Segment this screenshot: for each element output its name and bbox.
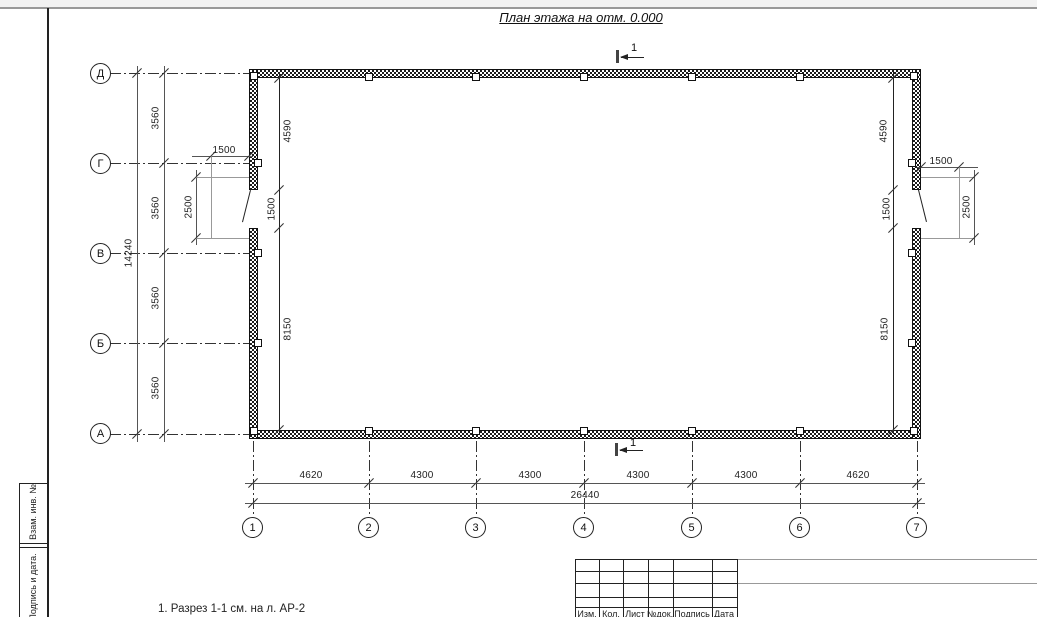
frame-top-line [0,7,1037,9]
dim-label: 3560 [151,376,162,399]
door-left-swing-edge [211,156,212,238]
dim-label: 4300 [626,470,649,481]
column-marker [254,249,262,257]
dim-label-total: 26440 [571,490,600,501]
dim-label: 1500 [267,197,278,220]
titleblock-line [575,559,576,617]
column-marker [254,159,262,167]
dim-line-bottom-total [245,503,925,504]
dim-label: 4590 [879,119,890,142]
column-marker [250,427,258,435]
column-marker [580,73,588,81]
axis-line-row [110,163,249,164]
door-left-width-dim-line [192,156,253,157]
axis-label: В [97,248,104,260]
column-marker [250,72,258,80]
axis-line-col [800,441,801,517]
door-right-leaf [918,190,927,222]
dim-label: 3560 [151,286,162,309]
stamp-cell-label: Взам. инв. № [28,484,38,540]
titleblock-header: №док. [647,609,673,617]
column-marker [796,427,804,435]
column-marker [254,339,262,347]
titleblock-line [712,559,713,617]
column-marker [688,73,696,81]
axis-bubble-col: 5 [681,517,702,538]
door-left-swing-dim-line [196,170,197,245]
axis-bubble-row: Д [90,63,111,84]
dim-line-interior-left [279,72,280,434]
dim-label: 2500 [184,195,195,218]
door-left-swing-bottom [196,238,249,239]
axis-line-row [110,343,249,344]
axis-bubble-col: 3 [465,517,486,538]
section-arrow-icon-bottom [619,447,627,453]
dim-label: 1500 [212,145,235,156]
axis-label: Г [98,158,104,170]
door-right-swing-dim-line [974,170,975,245]
dim-label: 3560 [151,196,162,219]
dim-label: 1500 [882,197,893,220]
column-marker [688,427,696,435]
door-right-swing-bottom [921,238,974,239]
axis-bubble-row: В [90,243,111,264]
titleblock-line [737,559,738,617]
titleblock-header: Дата [714,609,734,617]
axis-bubble-col: 4 [573,517,594,538]
axis-label: 6 [796,522,802,534]
door-right-width-dim-line [917,167,978,168]
dim-line-bottom-segments [245,483,925,484]
dim-label: 4620 [846,470,869,481]
column-marker [908,159,916,167]
dim-label: 4300 [734,470,757,481]
wall-left-lower [249,228,258,439]
axis-line-row [110,434,249,435]
top-margin-band [0,0,1037,7]
axis-line-col [917,441,918,517]
drawing-note: 1. Разрез 1-1 см. на л. АР-2 [158,603,305,615]
axis-bubble-col: 6 [789,517,810,538]
dim-label: 3560 [151,106,162,129]
axis-label: 7 [913,522,919,534]
dim-label-total: 14240 [124,239,135,268]
dim-line-left-total [137,66,138,442]
dim-label: 4620 [299,470,322,481]
dim-label: 2500 [962,195,973,218]
axis-bubble-row: Г [90,153,111,174]
door-left-leaf [242,190,251,222]
frame-left-line [47,8,49,617]
axis-label: Д [97,68,104,80]
axis-bubble-col: 1 [242,517,263,538]
column-marker [580,427,588,435]
dim-line-interior-right [893,72,894,434]
dim-line-left-segments [164,66,165,442]
stamp-divider [19,543,47,544]
titleblock-header: Кол. [602,609,620,617]
titleblock-header: Подпись [674,609,710,617]
axis-label: Б [97,338,104,350]
axis-label: 3 [472,522,478,534]
column-marker [910,72,918,80]
titleblock-header: Изм. [577,609,596,617]
door-left-swing-top [196,177,249,178]
titleblock-line-ext [737,583,1037,584]
stamp-left-edge [19,483,20,617]
door-right-swing-top [921,177,974,178]
stamp-divider [19,547,47,548]
column-marker [910,427,918,435]
section-arrow-icon-top [620,54,628,60]
column-marker [908,249,916,257]
dim-label: 1500 [929,156,952,167]
section-cut-bar-top [616,50,619,63]
section-cut-bar-bottom [615,443,618,456]
column-marker [472,427,480,435]
axis-line-col [692,441,693,517]
dim-label: 8150 [283,317,294,340]
stamp-cell-label: Подпись и дата. [28,553,38,617]
axis-bubble-row: Б [90,333,111,354]
axis-line-col [253,441,254,517]
dim-label: 8150 [880,317,891,340]
dim-label: 4300 [410,470,433,481]
axis-label: 5 [688,522,694,534]
axis-bubble-col: 2 [358,517,379,538]
wall-left-upper [249,69,258,190]
dim-label: 4300 [518,470,541,481]
axis-label: 1 [249,522,255,534]
axis-bubble-row: А [90,423,111,444]
column-marker [908,339,916,347]
axis-bubble-col: 7 [906,517,927,538]
axis-line-row [110,73,249,74]
titleblock-line-ext [737,559,1037,560]
section-mark-label-top: 1 [631,42,637,54]
column-marker [796,73,804,81]
column-marker [365,427,373,435]
drawing-sheet: План этажа на отм. 0.000 1 1 [0,0,1037,617]
axis-line-col [476,441,477,517]
titleblock-line [599,559,600,617]
dim-label: 4590 [283,119,294,142]
axis-label: 4 [580,522,586,534]
door-right-swing-edge [959,167,960,238]
titleblock-line [623,559,624,617]
column-marker [472,73,480,81]
axis-line-col [369,441,370,517]
page-title: План этажа на отм. 0.000 [499,10,662,25]
axis-line-col [584,441,585,517]
titleblock-header: Лист [625,609,645,617]
column-marker [365,73,373,81]
axis-label: А [97,428,104,440]
wall-right-lower [912,228,921,439]
axis-label: 2 [365,522,371,534]
